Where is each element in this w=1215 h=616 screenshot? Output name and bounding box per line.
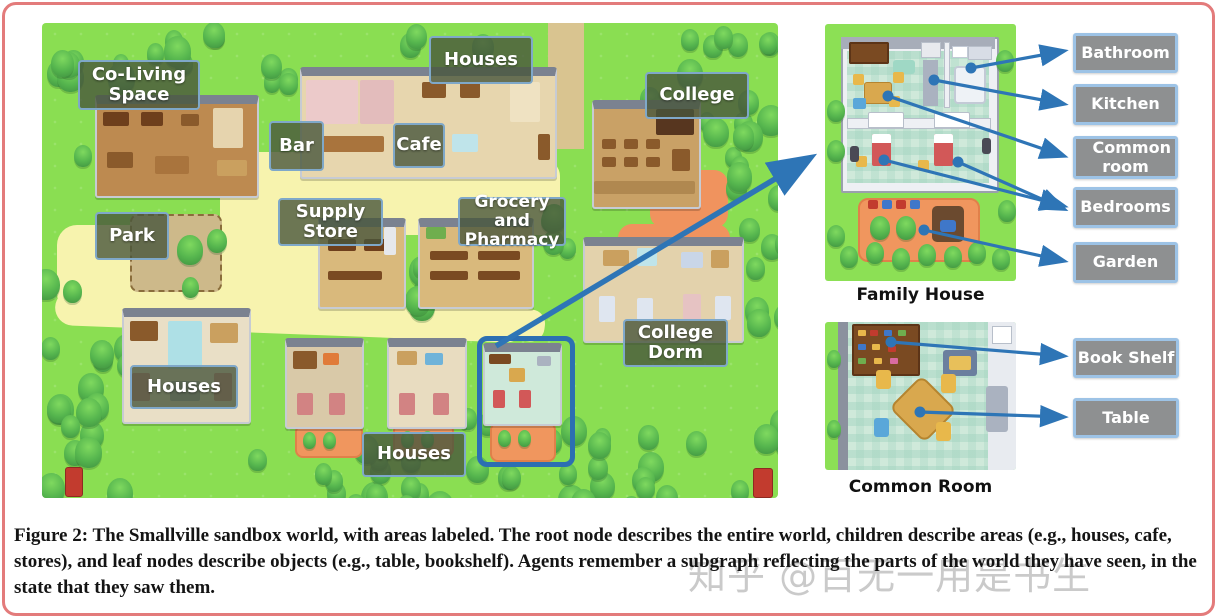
area-label-bar: Bar	[269, 121, 324, 171]
area-label-supply-store: Supply Store	[278, 198, 383, 246]
area-label-houses-west: Houses	[130, 365, 238, 409]
figure-2: Co-Living Space Houses Bar Cafe College …	[0, 0, 1215, 616]
area-label-college: College	[645, 72, 749, 119]
family-house-panel	[825, 24, 1016, 281]
node-label-table: Table	[1073, 398, 1179, 438]
figure-caption: Figure 2: The Smallville sandbox world, …	[14, 523, 1202, 600]
area-label-co-living-space: Co-Living Space	[78, 60, 200, 110]
node-label-bathroom: Bathroom	[1073, 33, 1178, 73]
area-label-houses-south: Houses	[362, 432, 466, 477]
node-label-kitchen: Kitchen	[1073, 84, 1178, 125]
area-label-cafe: Cafe	[393, 123, 445, 168]
node-label-bedrooms: Bedrooms	[1073, 187, 1178, 228]
common-room-caption: Common Room	[825, 477, 1016, 497]
node-label-garden: Garden	[1073, 242, 1178, 283]
common-room-panel	[825, 322, 1016, 470]
area-label-college-dorm: College Dorm	[623, 319, 728, 367]
node-label-common-room-text: Common room	[1093, 139, 1159, 176]
area-label-park: Park	[95, 212, 169, 260]
area-label-grocery-pharmacy: Grocery and Pharmacy	[458, 197, 566, 246]
node-label-book-shelf: Book Shelf	[1073, 338, 1179, 378]
family-house-highlight-box	[477, 336, 575, 467]
family-house-caption: Family House	[825, 285, 1016, 305]
node-label-common-room: Common room	[1073, 136, 1178, 179]
area-label-houses-north: Houses	[429, 36, 533, 84]
